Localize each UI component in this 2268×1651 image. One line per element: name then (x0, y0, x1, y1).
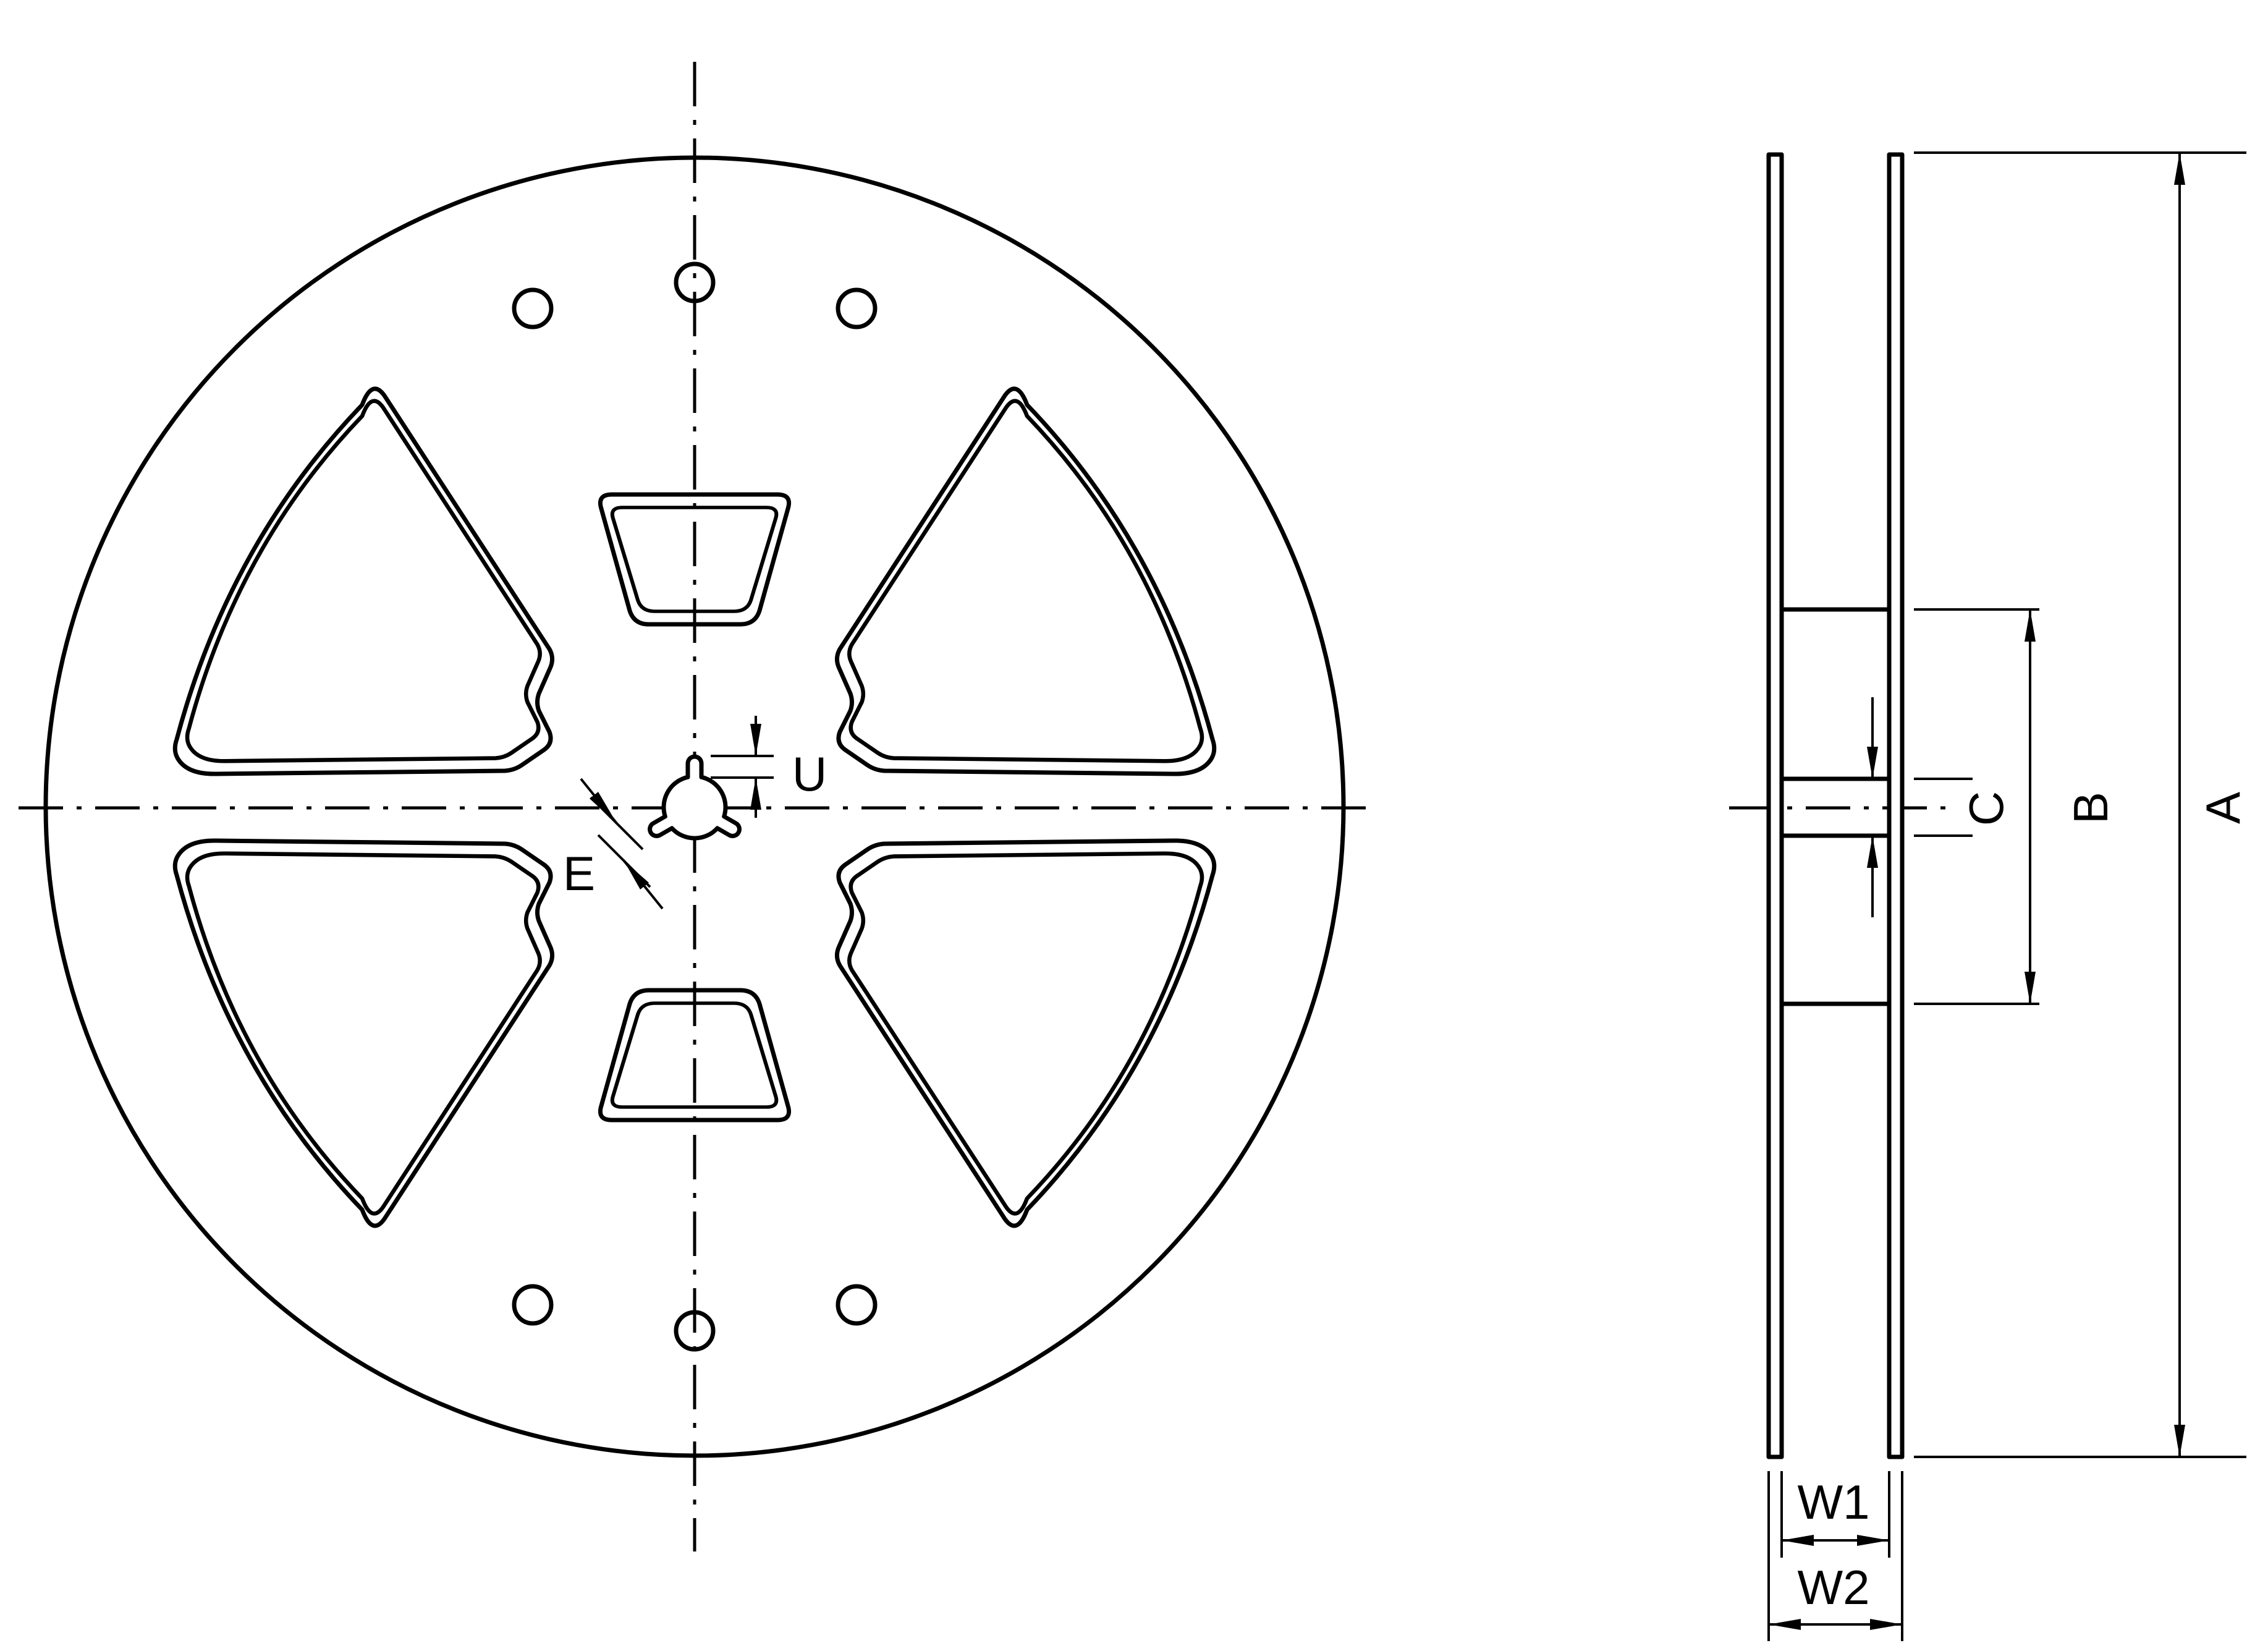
dimension-u: U (711, 716, 827, 818)
dimension-label-w1: W1 (1798, 1475, 1870, 1529)
b-arrowhead-down-icon (2025, 972, 2036, 1004)
window-lower-left (175, 841, 552, 1226)
dimension-e: E (563, 779, 662, 909)
e-arrowhead-icon (624, 861, 649, 889)
window-inner-contour (849, 854, 1202, 1214)
reel-front-view: U E (19, 62, 1378, 1551)
c-arrowhead-down-icon (1867, 747, 1878, 779)
b-arrowhead-up-icon (2025, 609, 2036, 642)
w2-arrowhead-right-icon (1870, 1619, 1902, 1630)
dimension-label-u: U (792, 747, 827, 801)
a-arrowhead-down-icon (2174, 1425, 2185, 1457)
u-arrowhead-up-icon (750, 778, 761, 810)
drive-hole (514, 1286, 551, 1323)
drive-hole (514, 290, 551, 327)
window-inner-contour (187, 401, 540, 762)
window-lower-right (837, 841, 1214, 1226)
dimension-label-b: B (2063, 792, 2118, 824)
c-arrowhead-up-icon (1867, 836, 1878, 868)
w1-arrowhead-right-icon (1857, 1535, 1889, 1546)
w1-arrowhead-left-icon (1782, 1535, 1814, 1546)
reel-technical-drawing: U E (0, 0, 2268, 1651)
dimension-label-w2: W2 (1798, 1560, 1870, 1615)
window-inner-contour (849, 401, 1202, 762)
window-inner-contour (187, 854, 540, 1214)
right-flange-section (1889, 155, 1902, 1457)
dimension-label-a: A (2196, 792, 2250, 824)
drive-hole (838, 1286, 875, 1323)
drive-hole (838, 290, 875, 327)
dimension-w1: W1 (1782, 1471, 1889, 1558)
technical-drawing-page: U E (0, 0, 2268, 1651)
left-flange-section (1769, 155, 1782, 1457)
window-upper-left (175, 389, 552, 774)
dimension-label-c: C (1959, 791, 2013, 826)
reel-side-view: C B A W1 (1729, 153, 2250, 1641)
window-upper-right (837, 389, 1214, 774)
dimension-label-e: E (563, 846, 595, 901)
a-arrowhead-up-icon (2174, 153, 2185, 185)
w2-arrowhead-left-icon (1769, 1619, 1801, 1630)
u-arrowhead-down-icon (750, 724, 761, 756)
arbor-hole-with-keyways (650, 757, 740, 838)
